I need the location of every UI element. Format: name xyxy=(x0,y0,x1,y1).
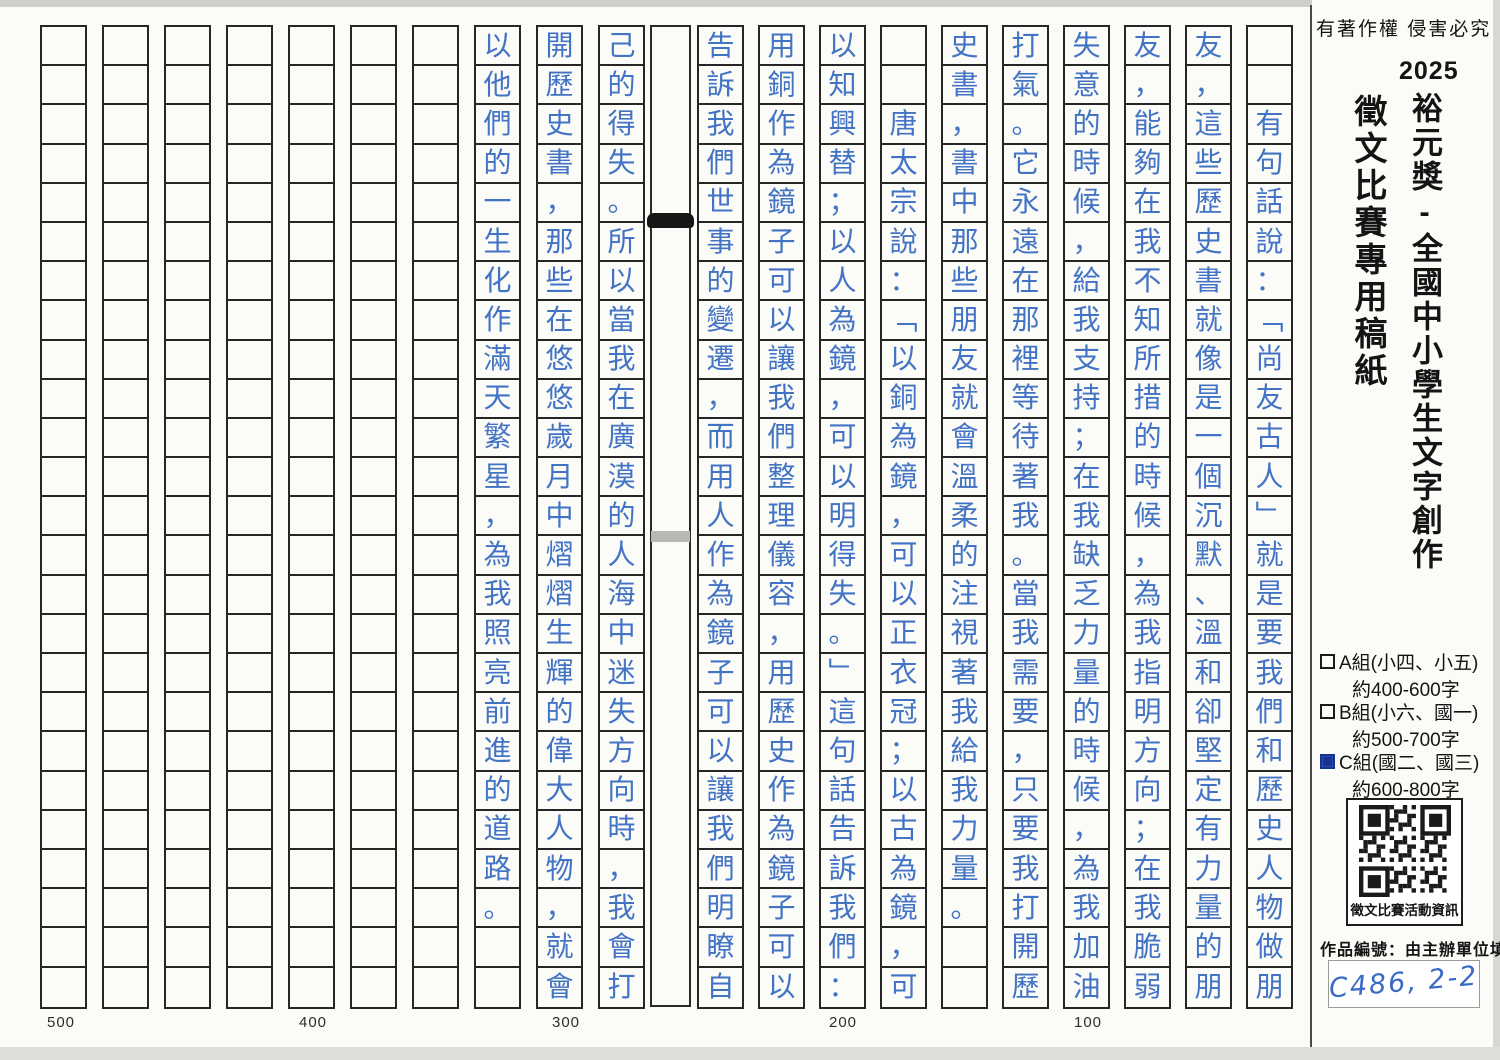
grid-cell: 量 xyxy=(1187,889,1230,928)
grid-cell: 句 xyxy=(821,732,864,771)
grid-cell: 古 xyxy=(882,811,925,850)
grid-cell: 書 xyxy=(943,66,986,105)
grid-cell: 能 xyxy=(1126,105,1169,144)
grid-cell: ， xyxy=(1187,66,1230,105)
grid-cell: 繁 xyxy=(476,419,519,458)
grid-cell: 們 xyxy=(699,850,742,889)
grid-cell: 子 xyxy=(760,223,803,262)
grid-cell: 熠 xyxy=(538,536,581,575)
grid-cell: 儀 xyxy=(760,536,803,575)
grid-cell xyxy=(166,732,209,771)
grid-cell xyxy=(166,811,209,850)
grid-cell: 方 xyxy=(600,732,643,771)
grid-cell: 太 xyxy=(882,145,925,184)
grid-cell xyxy=(42,223,85,262)
grid-cell: 我 xyxy=(821,889,864,928)
grid-cell: ， xyxy=(882,497,925,536)
grid-cell xyxy=(352,615,395,654)
grid-cell: 為 xyxy=(699,576,742,615)
grid-cell: 告 xyxy=(699,27,742,66)
grid-cell: 失 xyxy=(821,576,864,615)
manuscript-column: 打氣。它永遠在那裡等待著我。當我需要，只要我打開歷 xyxy=(1002,25,1049,1009)
grid-cell xyxy=(228,262,271,301)
manuscript-column xyxy=(412,25,459,1009)
grid-cell: 我 xyxy=(1248,654,1291,693)
grid-cell: 和 xyxy=(1187,654,1230,693)
grid-cell xyxy=(166,497,209,536)
grid-cell xyxy=(414,301,457,340)
grid-cell: 會 xyxy=(538,968,581,1007)
grid-cell: 等 xyxy=(1004,380,1047,419)
grid-cell: 打 xyxy=(600,968,643,1007)
grid-cell: 人 xyxy=(821,262,864,301)
grid-cell: 的 xyxy=(600,497,643,536)
grid-cell xyxy=(42,145,85,184)
grid-cell: 不 xyxy=(1126,262,1169,301)
grid-cell: 們 xyxy=(699,145,742,184)
grid-cell: 人 xyxy=(1248,458,1291,497)
grid-cell: 時 xyxy=(1065,732,1108,771)
grid-cell: 做 xyxy=(1248,928,1291,967)
grid-cell: 缺 xyxy=(1065,536,1108,575)
grid-cell: 中 xyxy=(538,497,581,536)
grid-cell: 進 xyxy=(476,732,519,771)
grid-cell xyxy=(228,928,271,967)
grid-cell: 、 xyxy=(1187,576,1230,615)
grid-cell xyxy=(290,223,333,262)
grid-cell: 理 xyxy=(760,497,803,536)
grid-cell: 亮 xyxy=(476,654,519,693)
grid-cell: 他 xyxy=(476,66,519,105)
grid-cell: 意 xyxy=(1065,66,1108,105)
grid-cell: 弱 xyxy=(1126,968,1169,1007)
grid-cell xyxy=(228,693,271,732)
grid-cell xyxy=(352,301,395,340)
grid-cell: 人 xyxy=(538,811,581,850)
grid-cell xyxy=(290,536,333,575)
grid-cell: 氣 xyxy=(1004,66,1047,105)
grid-cell xyxy=(166,536,209,575)
grid-cell xyxy=(352,693,395,732)
grid-cell xyxy=(42,811,85,850)
copyright-notice: 有著作權 侵害必究 xyxy=(1316,14,1491,41)
manuscript-column: 以他們的一生化作滿天繁星，為我照亮前進的道路。 xyxy=(474,25,521,1009)
grid-cell: 有 xyxy=(1248,105,1291,144)
grid-cell: 。 xyxy=(821,615,864,654)
grid-cell: 話 xyxy=(1248,184,1291,223)
grid-cell xyxy=(476,968,519,1007)
grid-cell: 訴 xyxy=(699,66,742,105)
grid-cell xyxy=(290,615,333,654)
grid-cell: 們 xyxy=(476,105,519,144)
grid-cell: 史 xyxy=(1248,811,1291,850)
grid-cell xyxy=(943,928,986,967)
grid-cell xyxy=(42,419,85,458)
grid-cell: 正 xyxy=(882,615,925,654)
grid-cell: 就 xyxy=(1187,301,1230,340)
grid-cell: 海 xyxy=(600,576,643,615)
manuscript-column xyxy=(350,25,397,1009)
grid-cell: 候 xyxy=(1126,497,1169,536)
grid-cell: 悠 xyxy=(538,341,581,380)
grid-cell xyxy=(42,458,85,497)
grid-cell xyxy=(352,27,395,66)
grid-cell xyxy=(228,536,271,575)
grid-cell: 大 xyxy=(538,772,581,811)
grid-cell: 所 xyxy=(1126,341,1169,380)
grid-cell xyxy=(414,27,457,66)
grid-cell xyxy=(352,341,395,380)
grid-cell: 為 xyxy=(760,145,803,184)
grid-cell: 在 xyxy=(1004,262,1047,301)
grid-cell xyxy=(166,380,209,419)
grid-cell: 得 xyxy=(600,105,643,144)
entry-number-label: 作品編號：由主辦單位填寫 xyxy=(1320,936,1500,960)
grid-cell xyxy=(352,419,395,458)
grid-cell: 向 xyxy=(600,772,643,811)
grid-cell: 在 xyxy=(1126,850,1169,889)
grid-cell: 說 xyxy=(1248,223,1291,262)
grid-cell: 我 xyxy=(476,576,519,615)
grid-cell: 史 xyxy=(943,27,986,66)
grid-cell: 方 xyxy=(1126,732,1169,771)
grid-cell xyxy=(352,497,395,536)
grid-cell: 月 xyxy=(538,458,581,497)
grid-cell xyxy=(414,732,457,771)
grid-cell xyxy=(414,66,457,105)
grid-cell: 失 xyxy=(1065,27,1108,66)
grid-cell xyxy=(228,419,271,458)
grid-cell: ， xyxy=(1065,811,1108,850)
grid-cell: 所 xyxy=(600,223,643,262)
grid-cell: 歷 xyxy=(1187,184,1230,223)
grid-cell xyxy=(290,105,333,144)
group-b-row: B組(小六、國一) 約500-700字 xyxy=(1320,698,1495,752)
grid-cell: 人 xyxy=(699,497,742,536)
grid-cell: 朋 xyxy=(943,301,986,340)
contest-title: 裕元獎-全國中小學生文字創作 xyxy=(1402,92,1447,612)
grid-cell: 一 xyxy=(476,184,519,223)
grid-cell: 的 xyxy=(1187,928,1230,967)
manuscript-column: 告訴我們世事的變遷，而用人作為鏡子可以讓我們明瞭自 xyxy=(697,25,744,1009)
grid-cell xyxy=(104,772,147,811)
grid-cell: 容 xyxy=(760,576,803,615)
grid-cell: 可 xyxy=(882,536,925,575)
grid-cell: 要 xyxy=(1004,693,1047,732)
grid-cell: 力 xyxy=(943,811,986,850)
grid-cell xyxy=(166,262,209,301)
grid-cell xyxy=(943,968,986,1007)
grid-cell: 迷 xyxy=(600,654,643,693)
grid-cell: 鏡 xyxy=(760,850,803,889)
grid-cell: 給 xyxy=(943,732,986,771)
grid-cell: 世 xyxy=(699,184,742,223)
grid-cell: 以 xyxy=(882,341,925,380)
grid-cell: 路 xyxy=(476,850,519,889)
grid-cell xyxy=(352,772,395,811)
grid-cell: 我 xyxy=(1004,497,1047,536)
grid-cell: 些 xyxy=(1187,145,1230,184)
grid-cell: 物 xyxy=(538,850,581,889)
grid-cell: 量 xyxy=(943,850,986,889)
word-marker-100: 100 xyxy=(1074,1014,1102,1031)
grid-cell xyxy=(42,536,85,575)
grid-cell: 銅 xyxy=(760,66,803,105)
grid-cell: ， xyxy=(1004,732,1047,771)
grid-cell xyxy=(166,341,209,380)
grid-cell: 化 xyxy=(476,262,519,301)
grid-cell: 史 xyxy=(1187,223,1230,262)
grid-cell xyxy=(104,850,147,889)
grid-cell xyxy=(352,458,395,497)
grid-cell xyxy=(104,105,147,144)
grid-cell: ， xyxy=(538,184,581,223)
grid-cell: 變 xyxy=(699,301,742,340)
grid-cell xyxy=(166,576,209,615)
grid-cell: 我 xyxy=(943,772,986,811)
grid-cell: 需 xyxy=(1004,654,1047,693)
grid-cell: 作 xyxy=(699,536,742,575)
grid-cell: 我 xyxy=(1004,850,1047,889)
grid-cell xyxy=(414,615,457,654)
grid-cell xyxy=(228,654,271,693)
grid-cell: 開 xyxy=(538,27,581,66)
year-label: 2025 xyxy=(1399,57,1459,86)
grid-cell xyxy=(104,341,147,380)
qr-code xyxy=(1359,805,1451,897)
grid-cell xyxy=(414,772,457,811)
grid-cell: 。 xyxy=(1004,536,1047,575)
checkbox-group-c-checked xyxy=(1320,754,1335,769)
grid-cell xyxy=(104,301,147,340)
grid-cell xyxy=(166,772,209,811)
grid-cell: 朋 xyxy=(1187,968,1230,1007)
checkbox-group-b xyxy=(1320,704,1335,719)
grid-cell xyxy=(352,223,395,262)
grid-cell: 為 xyxy=(760,811,803,850)
grid-cell: 可 xyxy=(760,928,803,967)
grid-cell: 物 xyxy=(1248,889,1291,928)
grid-cell: 打 xyxy=(1004,27,1047,66)
grid-cell: 力 xyxy=(1065,615,1108,654)
grid-cell: 告 xyxy=(821,811,864,850)
grid-cell: 在 xyxy=(538,301,581,340)
grid-cell: 它 xyxy=(1004,145,1047,184)
grid-cell: ， xyxy=(943,105,986,144)
grid-cell xyxy=(290,262,333,301)
grid-cell: 友 xyxy=(1187,27,1230,66)
grid-cell: 我 xyxy=(600,889,643,928)
grid-cell xyxy=(166,928,209,967)
grid-cell: 力 xyxy=(1187,850,1230,889)
grid-cell xyxy=(166,27,209,66)
grid-cell: 措 xyxy=(1126,380,1169,419)
grid-cell: 柔 xyxy=(943,497,986,536)
grid-cell: 堅 xyxy=(1187,732,1230,771)
grid-cell xyxy=(352,850,395,889)
grid-cell: 照 xyxy=(476,615,519,654)
scan-edge-top xyxy=(0,0,1312,7)
grid-cell xyxy=(414,497,457,536)
entry-number-handwritten: C486, 2-2 xyxy=(1328,960,1480,1004)
manuscript-column: 失意的時候，給我支持；在我缺乏力量的時候，為我加油 xyxy=(1063,25,1110,1009)
grid-cell: ， xyxy=(600,850,643,889)
grid-cell: 用 xyxy=(760,27,803,66)
grid-cell xyxy=(166,654,209,693)
grid-cell: 我 xyxy=(1126,889,1169,928)
grid-cell: ﹁ xyxy=(882,301,925,340)
grid-cell: 偉 xyxy=(538,732,581,771)
grid-cell: 在 xyxy=(1126,184,1169,223)
manuscript-column: 唐太宗說：﹁以銅為鏡，可以正衣冠；以古為鏡，可 xyxy=(880,25,927,1009)
manuscript-column: 開歷史書，那些在悠悠歲月中熠熠生輝的偉大人物，就會 xyxy=(536,25,583,1009)
entry-number-box: C486, 2-2 xyxy=(1328,960,1480,1008)
grid-cell xyxy=(42,693,85,732)
grid-cell: 沉 xyxy=(1187,497,1230,536)
grid-cell: 為 xyxy=(1126,576,1169,615)
grid-cell: ， xyxy=(699,380,742,419)
grid-cell: 衣 xyxy=(882,654,925,693)
grid-cell: 道 xyxy=(476,811,519,850)
grid-cell: 著 xyxy=(1004,458,1047,497)
grid-cell: ： xyxy=(821,968,864,1007)
grid-cell: 可 xyxy=(699,693,742,732)
binding-mark xyxy=(647,213,694,228)
grid-cell: 持 xyxy=(1065,380,1108,419)
manuscript-column: 史書，書中那些朋友就會溫柔的注視著我給我力量。 xyxy=(941,25,988,1009)
grid-cell xyxy=(414,458,457,497)
grid-cell xyxy=(290,889,333,928)
grid-cell: 卻 xyxy=(1187,693,1230,732)
grid-cell xyxy=(104,497,147,536)
group-c-label: C組(國二、國三) xyxy=(1339,748,1479,775)
grid-cell: 以 xyxy=(760,968,803,1007)
grid-cell xyxy=(166,458,209,497)
grid-cell xyxy=(290,419,333,458)
grid-cell xyxy=(228,66,271,105)
grid-cell xyxy=(228,497,271,536)
grid-cell xyxy=(414,105,457,144)
grid-cell xyxy=(228,341,271,380)
grid-cell: ； xyxy=(821,184,864,223)
grid-cell: 那 xyxy=(1004,301,1047,340)
grid-cell xyxy=(352,380,395,419)
grid-cell: 時 xyxy=(1126,458,1169,497)
grid-cell: 永 xyxy=(1004,184,1047,223)
grid-cell: 前 xyxy=(476,693,519,732)
grid-cell: 友 xyxy=(1126,27,1169,66)
grid-cell: 宗 xyxy=(882,184,925,223)
grid-cell: ﹁ xyxy=(1248,301,1291,340)
grid-cell xyxy=(166,145,209,184)
grid-cell: 以 xyxy=(821,27,864,66)
grid-cell: 明 xyxy=(821,497,864,536)
grid-cell: 的 xyxy=(538,693,581,732)
grid-cell xyxy=(414,223,457,262)
grid-cell: 得 xyxy=(821,536,864,575)
grid-cell xyxy=(166,105,209,144)
grid-cell xyxy=(228,968,271,1007)
grid-cell: 書 xyxy=(1187,262,1230,301)
grid-cell: 歷 xyxy=(538,66,581,105)
grid-cell xyxy=(290,576,333,615)
grid-cell xyxy=(42,301,85,340)
grid-cell: 待 xyxy=(1004,419,1047,458)
grid-cell xyxy=(290,772,333,811)
grid-cell: 漠 xyxy=(600,458,643,497)
grid-cell: 候 xyxy=(1065,772,1108,811)
grid-cell xyxy=(42,262,85,301)
grid-cell: 以 xyxy=(821,223,864,262)
grid-cell: 輝 xyxy=(538,654,581,693)
grid-cell: 那 xyxy=(538,223,581,262)
grid-cell: 以 xyxy=(699,732,742,771)
grid-cell: 史 xyxy=(538,105,581,144)
grid-cell: 知 xyxy=(821,66,864,105)
grid-cell: 生 xyxy=(538,615,581,654)
grid-cell xyxy=(228,772,271,811)
grid-cell: 廣 xyxy=(600,419,643,458)
grid-cell xyxy=(228,458,271,497)
grid-cell: 事 xyxy=(699,223,742,262)
word-marker-400: 400 xyxy=(299,1014,327,1031)
grid-cell: 就 xyxy=(1248,536,1291,575)
grid-cell: 說 xyxy=(882,223,925,262)
grid-cell xyxy=(228,811,271,850)
grid-cell: 句 xyxy=(1248,145,1291,184)
grid-cell: 們 xyxy=(760,419,803,458)
grid-cell xyxy=(166,850,209,889)
grid-cell xyxy=(166,184,209,223)
grid-cell xyxy=(228,223,271,262)
grid-cell xyxy=(104,889,147,928)
grid-cell xyxy=(414,341,457,380)
grid-cell: 失 xyxy=(600,145,643,184)
manuscript-column: 友，能夠在我不知所措的時候，為我指明方向；在我脆弱 xyxy=(1124,25,1171,1009)
grid-cell: ； xyxy=(1126,811,1169,850)
grid-cell: 候 xyxy=(1065,184,1108,223)
checkbox-group-a xyxy=(1320,654,1335,669)
grid-cell: 我 xyxy=(1065,301,1108,340)
grid-cell: 當 xyxy=(600,301,643,340)
grid-cell xyxy=(414,576,457,615)
grid-cell: 知 xyxy=(1126,301,1169,340)
grid-cell: 指 xyxy=(1126,654,1169,693)
grid-cell xyxy=(352,732,395,771)
grid-cell: 視 xyxy=(943,615,986,654)
grid-cell: 歷 xyxy=(1248,772,1291,811)
grid-cell xyxy=(414,654,457,693)
group-a-row: A組(小四、小五) 約400-600字 xyxy=(1320,648,1495,702)
grid-cell: 注 xyxy=(943,576,986,615)
grid-cell xyxy=(414,184,457,223)
grid-cell: 我 xyxy=(699,105,742,144)
grid-cell: 明 xyxy=(1126,693,1169,732)
grid-cell xyxy=(352,66,395,105)
group-c-row: C組(國二、國三) 約600-800字 xyxy=(1320,748,1495,802)
grid-cell: 和 xyxy=(1248,732,1291,771)
grid-cell xyxy=(228,184,271,223)
grid-cell: 失 xyxy=(600,693,643,732)
grid-cell xyxy=(290,928,333,967)
grid-cell: 可 xyxy=(882,968,925,1007)
grid-cell xyxy=(104,262,147,301)
grid-cell: 作 xyxy=(760,772,803,811)
grid-cell: ， xyxy=(1065,223,1108,262)
manuscript-column xyxy=(102,25,149,1009)
grid-cell xyxy=(414,380,457,419)
grid-cell: 中 xyxy=(600,615,643,654)
